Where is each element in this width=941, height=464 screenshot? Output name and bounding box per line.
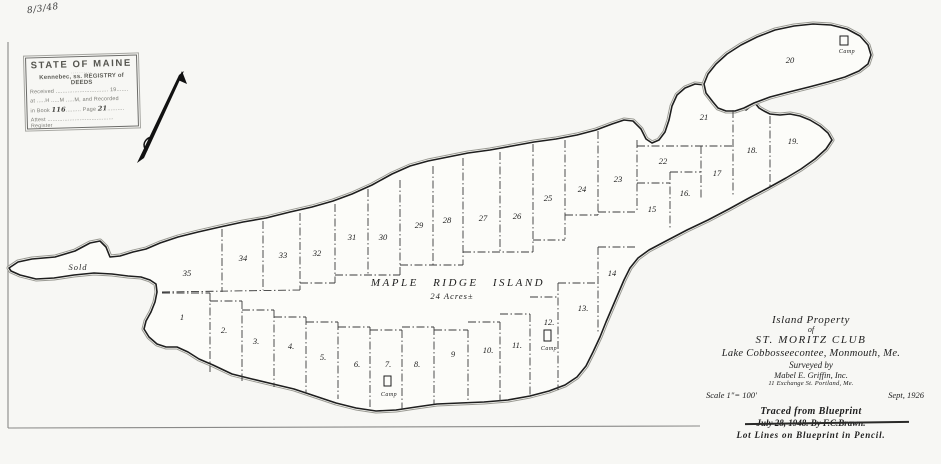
lot-number-12: 12. xyxy=(544,317,555,327)
title-line-surveyor: Mabel E. Griffin, Inc. xyxy=(688,371,934,380)
title-line-address: 11 Exchange St. Portland, Me. xyxy=(688,380,934,388)
lot-number-8: 8. xyxy=(414,359,420,369)
title-scale-row: Scale 1"= 100' Sept, 1926 xyxy=(688,388,934,401)
lot-number-27: 27 xyxy=(479,213,488,223)
north-arrow-head xyxy=(178,71,187,84)
lot-number-21: 21 xyxy=(700,112,709,122)
sheet-bottom-border xyxy=(8,426,700,428)
lot-number-4: 4. xyxy=(288,341,294,351)
lot-number-31: 31 xyxy=(347,232,357,242)
lot-number-19: 19. xyxy=(788,136,799,146)
island-acreage-label: 24 Acres± xyxy=(430,291,473,301)
lot-number-20: 20 xyxy=(786,55,795,65)
lot-number-32: 32 xyxy=(312,248,322,258)
lot-number-16: 16. xyxy=(680,188,691,198)
lot-number-7: 7. xyxy=(385,359,391,369)
lot-number-15: 15 xyxy=(648,204,657,214)
lot-number-13: 13. xyxy=(578,303,589,313)
lot-number-30: 30 xyxy=(378,232,388,242)
lot-number-28: 28 xyxy=(443,215,452,225)
north-arrow-needle xyxy=(137,71,184,163)
north-arrow xyxy=(137,71,187,163)
camp-label: Camp xyxy=(541,346,557,352)
lot-number-29: 29 xyxy=(415,220,424,230)
title-line-lake: Lake Cobbosseecontee, Monmouth, Me. xyxy=(688,347,934,360)
lot-number-1: 1 xyxy=(180,312,184,322)
lot-number-35: 35 xyxy=(182,268,192,278)
lot-number-33: 33 xyxy=(278,250,288,260)
lot-number-2: 2. xyxy=(221,325,227,335)
survey-date: Sept, 1926 xyxy=(888,390,924,401)
map-scale: Scale 1"= 100' xyxy=(706,390,757,401)
traced-note-line3: Lot Lines on Blueprint in Pencil. xyxy=(688,429,934,441)
island-name-label: MAPLE RIDGE ISLAND xyxy=(370,277,545,289)
lot-number-25: 25 xyxy=(544,193,553,203)
lot-number-34: 34 xyxy=(238,253,248,263)
lot-number-23: 23 xyxy=(614,174,623,184)
lot-number-3: 3. xyxy=(252,336,259,346)
lot-number-6: 6. xyxy=(354,359,360,369)
title-line-of: of xyxy=(688,326,934,334)
sold-parcel-label: Sold xyxy=(68,262,87,272)
lot-number-10: 10. xyxy=(483,345,494,355)
north-lobe-outline xyxy=(704,24,871,111)
scanned-plat-map-page: { "page": { "scan_date_note": "8/3/48" }… xyxy=(0,0,941,464)
lot-number-14: 14 xyxy=(608,268,617,278)
lot-number-5: 5. xyxy=(320,352,326,362)
lot-number-18: 18. xyxy=(747,145,758,155)
traced-note-line1: Traced from Blueprint xyxy=(688,406,934,418)
lot-number-24: 24 xyxy=(578,184,587,194)
camp-label: Camp xyxy=(381,392,397,398)
camp-label: Camp xyxy=(839,49,855,55)
lot-number-26: 26 xyxy=(513,211,522,221)
lot-number-11: 11. xyxy=(512,340,522,350)
lot-number-22: 22 xyxy=(659,156,668,166)
title-line-club: ST. MORITZ CLUB xyxy=(688,334,934,347)
lot-number-17: 17 xyxy=(713,168,722,178)
